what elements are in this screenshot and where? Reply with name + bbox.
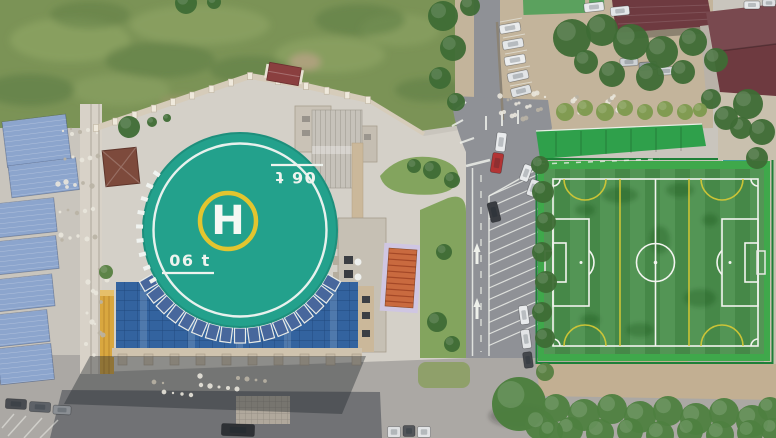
car (53, 405, 71, 415)
tree (532, 181, 554, 203)
tree (536, 363, 554, 381)
wall-pillar (171, 99, 176, 106)
building-shadow (64, 356, 366, 414)
orange-play-mat (380, 243, 423, 313)
wall-pillar (248, 73, 253, 80)
car (584, 1, 605, 12)
tree (574, 50, 598, 74)
wall-pillar (190, 92, 195, 99)
tree (444, 172, 460, 188)
tree (532, 302, 552, 322)
weeds (596, 103, 614, 121)
weeds (617, 100, 633, 116)
tree (147, 117, 157, 127)
car (221, 423, 254, 436)
tree (429, 67, 451, 89)
soccer-field-complex (536, 124, 776, 400)
tree (447, 93, 465, 111)
wall-pillar (151, 105, 156, 112)
tree (704, 48, 728, 72)
car (610, 6, 630, 17)
car (403, 426, 415, 437)
wall-pillar (113, 118, 118, 125)
helipad-skylight-panel (235, 328, 246, 343)
tree (733, 89, 763, 119)
road-west-lawn (420, 197, 466, 358)
tree (746, 147, 768, 169)
tree (679, 28, 707, 56)
helipad-skylight-panel (220, 326, 233, 342)
wall-pillar (304, 83, 309, 90)
tree (599, 61, 625, 87)
mass-marking: 06 t (162, 251, 214, 273)
mass-marking-text: 06 t (274, 168, 315, 187)
tree (436, 244, 452, 260)
tree (535, 328, 555, 348)
pavilion (102, 147, 140, 186)
wall-pillar (94, 125, 99, 132)
tree (671, 60, 695, 84)
tree (118, 116, 140, 138)
tree (407, 159, 421, 173)
tree (440, 35, 466, 61)
car (744, 1, 760, 9)
tree (428, 1, 458, 31)
tree (535, 271, 557, 293)
car (495, 132, 507, 152)
car (418, 427, 431, 438)
wall-pillar (228, 79, 233, 86)
weeds (556, 103, 574, 121)
wall-pillar (209, 86, 214, 93)
weeds (637, 104, 653, 120)
rooftop-unit (344, 256, 353, 264)
wall-pillar (345, 92, 350, 99)
tree (536, 212, 556, 232)
weeds (657, 101, 673, 117)
helipad-skylight-panel (247, 326, 260, 342)
aerial-photo: H 06 t 06 t (0, 0, 776, 438)
mass-marking-rotated: 06 t (271, 165, 323, 187)
weeds (577, 100, 593, 116)
wall-pillar (366, 97, 371, 104)
helipad-edge-dash (136, 238, 143, 243)
tree (163, 114, 171, 122)
ac-unit (355, 259, 362, 266)
car (29, 401, 50, 412)
tree (714, 106, 738, 130)
mass-marking-text: 06 t (169, 251, 210, 270)
grass-patch (418, 362, 470, 388)
tree (423, 161, 441, 179)
weeds (693, 103, 707, 117)
helipad-letter: H (211, 198, 244, 244)
car (5, 398, 26, 409)
ac-unit (355, 274, 362, 281)
car (522, 351, 533, 368)
tree (427, 312, 447, 332)
tree (532, 242, 552, 262)
south-dirt-strip (536, 360, 776, 400)
rooftop-unit (344, 270, 353, 278)
tree (531, 156, 549, 174)
car (388, 427, 401, 438)
car (763, 0, 776, 7)
aerial-photo-canvas: H 06 t 06 t (0, 0, 776, 438)
weeds (677, 104, 693, 120)
tree (444, 336, 460, 352)
helipad-edge-dash (136, 224, 143, 228)
tree (636, 63, 664, 91)
tree (99, 265, 113, 279)
tree (749, 119, 775, 145)
wall-pillar (324, 87, 329, 94)
tree (613, 24, 649, 60)
